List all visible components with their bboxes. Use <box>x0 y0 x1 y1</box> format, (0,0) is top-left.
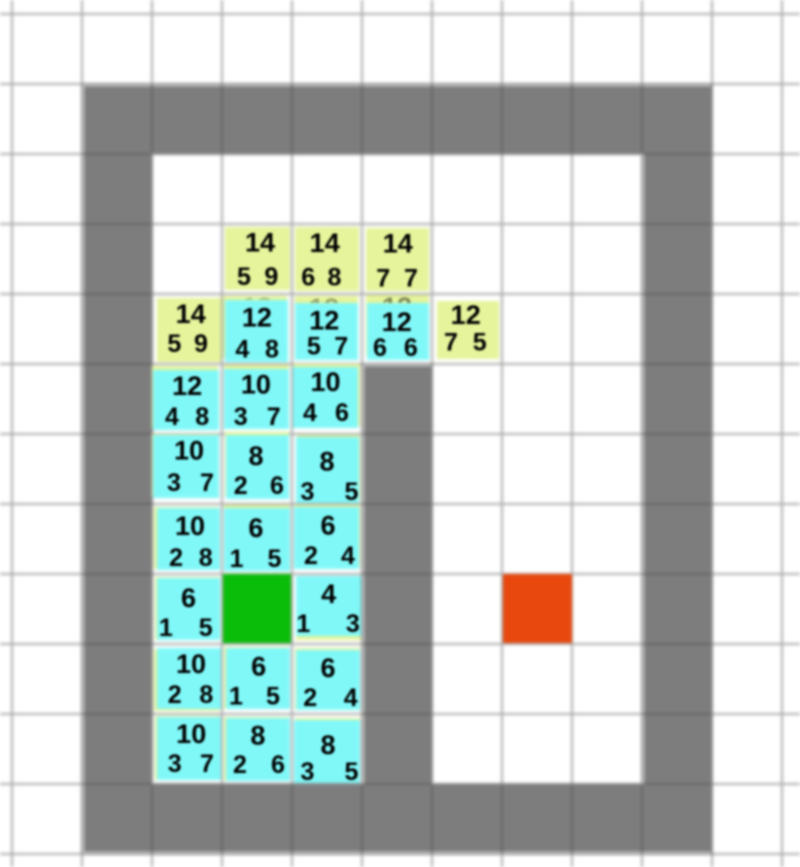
svg-text:7: 7 <box>444 329 458 357</box>
svg-text:8: 8 <box>320 730 335 760</box>
svg-text:4: 4 <box>344 684 358 712</box>
svg-text:8: 8 <box>328 264 342 292</box>
svg-text:2: 2 <box>168 681 182 709</box>
svg-text:6: 6 <box>320 653 335 683</box>
svg-text:10: 10 <box>176 649 206 679</box>
svg-text:10: 10 <box>241 370 271 400</box>
svg-text:7: 7 <box>200 750 214 778</box>
svg-text:12: 12 <box>242 303 272 333</box>
svg-text:2: 2 <box>304 542 318 570</box>
svg-text:8: 8 <box>199 544 213 572</box>
svg-text:5: 5 <box>307 333 321 361</box>
svg-text:10: 10 <box>310 367 340 397</box>
svg-text:7: 7 <box>334 333 348 361</box>
svg-text:14: 14 <box>383 229 413 259</box>
svg-text:4: 4 <box>303 399 317 427</box>
svg-text:5: 5 <box>344 758 358 786</box>
svg-text:3: 3 <box>167 469 181 497</box>
svg-text:2: 2 <box>234 472 248 500</box>
svg-text:6: 6 <box>373 334 387 362</box>
svg-text:8: 8 <box>250 721 265 751</box>
svg-text:10: 10 <box>175 511 205 541</box>
svg-text:10: 10 <box>174 436 204 466</box>
svg-text:1: 1 <box>229 683 243 711</box>
svg-text:6: 6 <box>270 472 284 500</box>
svg-text:12: 12 <box>382 307 412 337</box>
svg-text:2: 2 <box>233 751 247 779</box>
svg-text:14: 14 <box>245 228 275 258</box>
svg-text:3: 3 <box>300 758 314 786</box>
svg-text:14: 14 <box>176 299 206 329</box>
svg-text:6: 6 <box>335 399 349 427</box>
svg-text:12: 12 <box>309 305 339 335</box>
svg-text:7: 7 <box>200 469 214 497</box>
svg-text:7: 7 <box>376 265 390 293</box>
svg-text:9: 9 <box>264 263 278 291</box>
svg-text:8: 8 <box>319 447 334 477</box>
svg-text:6: 6 <box>251 652 266 682</box>
svg-text:8: 8 <box>199 681 213 709</box>
svg-text:6: 6 <box>301 264 315 292</box>
svg-text:6: 6 <box>320 510 335 540</box>
svg-text:1: 1 <box>296 610 310 638</box>
svg-text:4: 4 <box>341 542 355 570</box>
svg-text:7: 7 <box>404 265 418 293</box>
svg-text:1: 1 <box>159 614 173 642</box>
svg-text:5: 5 <box>237 263 251 291</box>
svg-text:12: 12 <box>172 371 202 401</box>
svg-text:5: 5 <box>345 478 359 506</box>
svg-text:5: 5 <box>267 545 281 573</box>
svg-text:2: 2 <box>303 684 317 712</box>
svg-text:9: 9 <box>194 330 208 358</box>
svg-text:4: 4 <box>321 579 336 609</box>
svg-text:12: 12 <box>451 300 481 330</box>
svg-text:4: 4 <box>165 403 179 431</box>
svg-text:6: 6 <box>181 583 196 613</box>
svg-text:7: 7 <box>267 403 281 431</box>
svg-text:3: 3 <box>234 403 248 431</box>
svg-text:6: 6 <box>404 334 418 362</box>
svg-text:4: 4 <box>235 336 249 364</box>
svg-text:2: 2 <box>169 544 183 572</box>
svg-text:10: 10 <box>176 719 206 749</box>
svg-text:8: 8 <box>195 403 209 431</box>
svg-text:3: 3 <box>168 750 182 778</box>
svg-text:5: 5 <box>199 614 213 642</box>
svg-text:3: 3 <box>301 478 315 506</box>
svg-text:6: 6 <box>271 751 285 779</box>
svg-text:1: 1 <box>230 545 244 573</box>
svg-text:3: 3 <box>346 610 360 638</box>
svg-text:8: 8 <box>265 336 279 364</box>
svg-text:5: 5 <box>266 683 280 711</box>
svg-text:5: 5 <box>167 330 181 358</box>
svg-text:5: 5 <box>473 329 487 357</box>
svg-text:14: 14 <box>310 228 340 258</box>
svg-text:6: 6 <box>248 513 263 543</box>
svg-text:8: 8 <box>248 441 263 471</box>
